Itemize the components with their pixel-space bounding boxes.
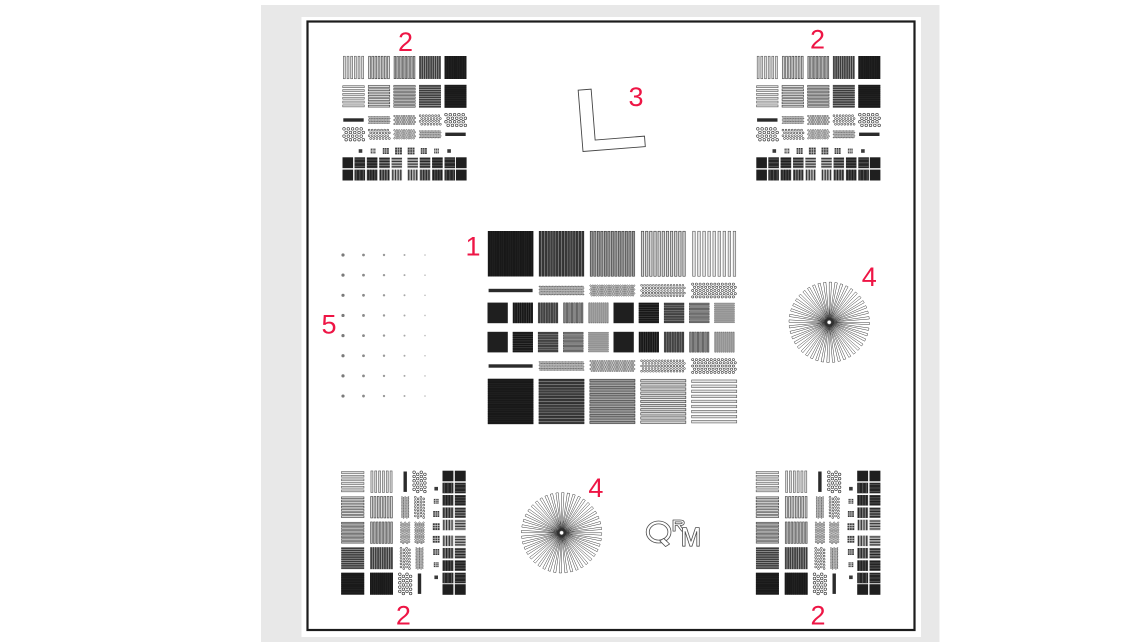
svg-text:1: 1: [465, 232, 480, 262]
svg-text:3: 3: [628, 82, 643, 112]
svg-text:4: 4: [862, 262, 877, 292]
svg-text:5: 5: [321, 310, 336, 340]
svg-text:2: 2: [810, 25, 825, 55]
svg-text:2: 2: [810, 601, 825, 631]
svg-text:2: 2: [396, 601, 411, 631]
svg-text:4: 4: [588, 473, 603, 503]
svg-text:2: 2: [398, 27, 413, 57]
